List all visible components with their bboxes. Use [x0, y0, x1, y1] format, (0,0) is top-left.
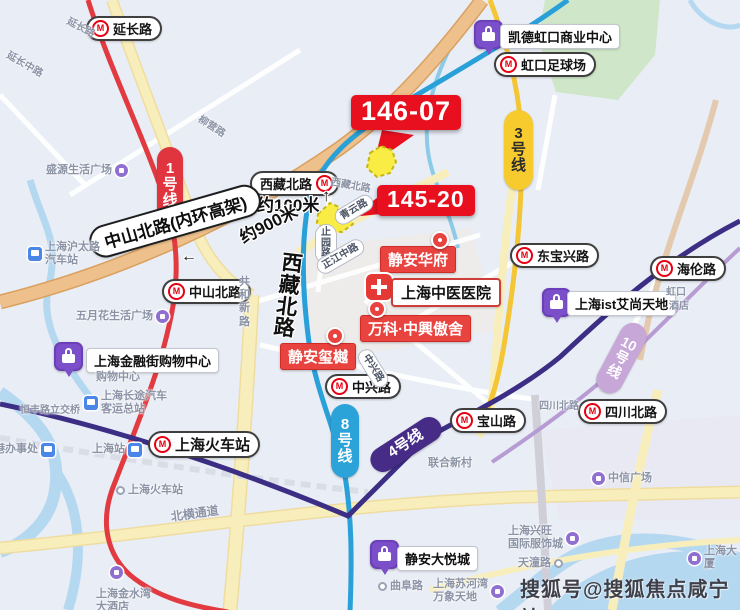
metro-logo-icon: M	[584, 403, 601, 420]
poi-jingan-joy-city[interactable]: 静安大悦城	[397, 546, 478, 571]
station-hailun-road[interactable]: M海伦路	[650, 256, 726, 281]
line-pill-label: 8 号 线	[337, 417, 352, 466]
map-label-text: 天潼路	[518, 557, 551, 570]
transit-station-icon	[84, 396, 98, 410]
station-label: 延长路	[113, 19, 152, 38]
poi-label: 静安玺樾	[288, 349, 348, 366]
line-10-pill[interactable]: 10 号 线	[592, 318, 652, 398]
map-label-17: 中信广场	[592, 472, 652, 485]
metro-logo-icon: M	[500, 56, 517, 73]
arrow-up: ↑	[322, 187, 331, 205]
parcel-badge-146-07[interactable]: 146-07	[351, 95, 461, 130]
map-label-7: 恒丰路立交桥	[20, 405, 80, 417]
xizang-north-vertical-label: 西 藏 北 路	[272, 251, 304, 341]
transit-station-icon	[28, 247, 42, 261]
hospital-label: 上海中医医院	[401, 285, 491, 302]
station-label: 宝山路	[477, 411, 516, 430]
poi-jingan-huafu[interactable]: 静安华府	[380, 246, 456, 273]
poi-dot-icon	[115, 164, 128, 177]
map-label-4: 盛源生活广场	[46, 164, 128, 177]
metro-entrance-icon	[554, 559, 563, 568]
xizang-north-vertical: 西 藏 北 路	[272, 252, 303, 341]
map-canvas[interactable]: 146-07145-20M延长路西藏北路MM中山北路M虹口足球场M东宝兴路M海伦…	[0, 0, 740, 610]
station-label: 四川北路	[605, 402, 657, 421]
metro-logo-icon: M	[331, 378, 348, 395]
map-label-text: 上海沪太路 汽车站	[45, 241, 100, 267]
station-zhongshan-north-road[interactable]: M中山北路	[162, 279, 251, 304]
map-label-text: 延长中路	[4, 50, 45, 80]
map-label-24: 上海苏河湾 万象天地	[433, 578, 504, 604]
map-label-13: 北横通道	[170, 503, 220, 524]
poi-label: 万科·中興傲舍	[368, 321, 463, 338]
map-label-8: 港办事处	[0, 443, 55, 457]
map-label-text: 上海站	[92, 443, 125, 456]
metro-entrance-icon	[378, 582, 387, 591]
map-label-14: 共 和 新 路	[239, 276, 250, 329]
badge-label: 146-07	[361, 96, 451, 126]
map-label-6: 上海沪太路 汽车站	[28, 241, 100, 267]
map-label-23: 曲阜路	[378, 580, 423, 593]
map-label-19: 酒店	[669, 301, 689, 313]
transit-station-icon	[41, 443, 55, 457]
mall-label: 凯德虹口商业中心	[508, 30, 612, 45]
map-label-12: 上海长途汽车 客运总站	[84, 390, 167, 416]
map-label-2: 柳营路	[195, 114, 227, 140]
map-label-text: 上海兴旺 国际服饰城	[508, 525, 563, 551]
station-label: 虹口足球场	[521, 55, 586, 74]
shopping-bag-icon	[474, 20, 503, 49]
line-pill-label: 3 号 线	[511, 126, 526, 175]
map-label-1: 延长中路	[4, 50, 45, 80]
map-label-text: 上海火车站	[128, 484, 183, 497]
station-label: 东宝兴路	[537, 246, 589, 265]
map-label-25: 上海大厦	[688, 545, 740, 571]
station-baoshan-road[interactable]: M宝山路	[450, 408, 526, 433]
arrow-left: ←	[181, 249, 197, 266]
poi-vanke-zhongxing-aoshe[interactable]: 万科·中興傲舍	[360, 315, 471, 342]
map-label-9: 上海站	[92, 443, 142, 457]
map-label-text: 盛源生活广场	[46, 164, 112, 177]
line-pill-label: 4号线	[386, 427, 427, 461]
station-hongkou-football-stadium[interactable]: M虹口足球场	[494, 52, 596, 77]
map-label-11: 购物中心	[96, 371, 140, 384]
road-pill-label: 青云路	[338, 197, 369, 222]
map-label-18: 虹口	[666, 287, 686, 299]
metro-entrance-icon	[116, 486, 125, 495]
map-label-text: 虹口	[666, 287, 686, 299]
watermark: 搜狐号@搜狐焦点咸宁站	[520, 573, 740, 610]
station-dongbaoxing-road[interactable]: M东宝兴路	[510, 243, 599, 268]
poi-pin-icon	[431, 231, 449, 249]
poi-hospital[interactable]: 上海中医医院	[391, 278, 501, 307]
map-label-text: 恒丰路立交桥	[20, 405, 80, 417]
map-label-text: 上海大厦	[704, 545, 740, 571]
mall-label: 静安大悦城	[405, 552, 470, 567]
poi-label: 静安华府	[388, 252, 448, 269]
poi-jingan-xiyue[interactable]: 静安玺樾	[280, 343, 356, 370]
poi-dot-icon	[156, 310, 169, 323]
road-qingyun-road: 青云路	[332, 192, 377, 228]
map-label-15: 联合新村	[428, 457, 472, 470]
metro-logo-icon: M	[168, 283, 185, 300]
map-label-22: 天潼路	[518, 557, 563, 570]
metro-logo-icon: M	[516, 247, 533, 264]
poi-dot-icon	[110, 566, 123, 579]
map-label-text: 西藏北路	[330, 177, 371, 196]
map-label-10: 上海火车站	[116, 484, 183, 497]
map-label-text: 共 和 新 路	[239, 276, 250, 329]
map-label-3: 西藏北路	[330, 177, 371, 196]
map-label-text: 港办事处	[0, 443, 38, 456]
map-label-text: 酒店	[669, 301, 689, 313]
map-label-text: 北横通道	[170, 503, 220, 524]
poi-financial-street-mall[interactable]: 上海金融街购物中心	[86, 348, 219, 373]
badge-label: 145-20	[387, 186, 465, 212]
metro-logo-icon: M	[154, 436, 171, 453]
map-label-text: 上海长途汽车 客运总站	[101, 390, 167, 416]
mall-label: 上海ist艾尚天地	[575, 297, 668, 312]
metro-logo-icon: M	[456, 412, 473, 429]
station-label: 西藏北路	[260, 174, 312, 193]
map-label-text: 联合新村	[428, 457, 472, 470]
map-label-text: 购物中心	[96, 371, 140, 384]
shopping-bag-icon	[54, 342, 83, 371]
station-shanghai-railway-station[interactable]: M上海火车站	[148, 431, 260, 458]
station-zhongxing-road[interactable]: M中兴路	[325, 374, 401, 399]
poi-dot-icon	[491, 585, 504, 598]
map-label-text: 中信广场	[608, 472, 652, 485]
line-pill-label: 1 号 线	[162, 161, 177, 210]
shopping-bag-icon	[370, 540, 399, 569]
map-label-text: 柳营路	[195, 114, 227, 140]
map-label-text: 五月花生活广场	[76, 310, 153, 323]
map-label-text: 曲阜路	[390, 580, 423, 593]
mall-label: 上海金融街购物中心	[94, 354, 211, 369]
map-label-text: 上海苏河湾 万象天地	[433, 578, 488, 604]
map-label-text: 四川北路	[539, 401, 579, 413]
transit-station-icon	[128, 443, 142, 457]
poi-dot-icon	[592, 472, 605, 485]
map-label-5: 五月花生活广场	[76, 310, 169, 323]
poi-capitaland-hongkou-plaza[interactable]: 凯德虹口商业中心	[500, 24, 620, 49]
arrow-left-label: ←	[181, 248, 197, 265]
line-8-pill[interactable]: 8 号 线	[331, 404, 359, 478]
metro-logo-icon: M	[656, 260, 673, 277]
poi-dot-icon	[566, 532, 579, 545]
station-yanchang-road[interactable]: M延长路	[86, 16, 162, 41]
poi-pin-icon	[326, 327, 344, 345]
poi-dot-icon	[688, 552, 701, 565]
poi-pin-icon	[368, 300, 386, 318]
station-label: 海伦路	[677, 259, 716, 278]
parcel-badge-145-20[interactable]: 145-20	[377, 185, 475, 216]
line-3-pill[interactable]: 3 号 线	[504, 110, 533, 190]
poi-shanghai-ist[interactable]: 上海ist艾尚天地	[567, 291, 676, 316]
station-label: 中山北路	[189, 282, 241, 301]
map-label-21: 上海兴旺 国际服饰城	[508, 525, 579, 551]
line-pill-label: 10 号 线	[604, 334, 639, 381]
hospital-cross-icon	[366, 274, 392, 300]
map-label-20: 上海金水湾 大酒店	[96, 588, 151, 610]
map-label-16: 四川北路	[539, 401, 579, 413]
station-label: 上海火车站	[175, 434, 250, 455]
station-sichuan-north-road[interactable]: M四川北路	[578, 399, 667, 424]
map-label-text: 上海金水湾 大酒店	[96, 588, 151, 610]
